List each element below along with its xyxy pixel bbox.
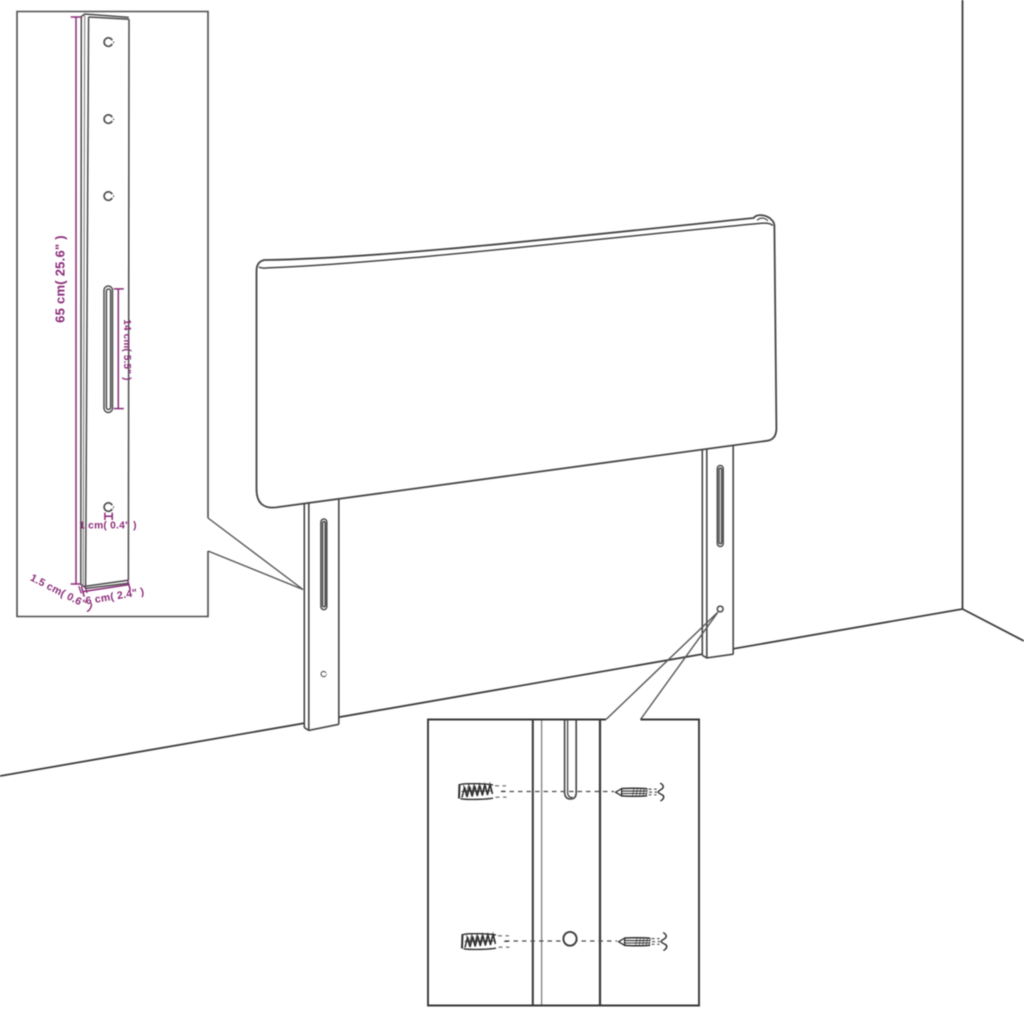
svg-text:1 cm( 0.4" ): 1 cm( 0.4" )	[79, 521, 137, 532]
svg-text:65 cm( 25.6" ): 65 cm( 25.6" )	[53, 235, 68, 323]
svg-text:14 cm( 5.5" ): 14 cm( 5.5" )	[121, 319, 132, 380]
svg-text:1.5 cm( 0.6" ): 1.5 cm( 0.6" )	[28, 572, 95, 614]
svg-text:6 cm( 2.4" ): 6 cm( 2.4" )	[85, 586, 146, 608]
